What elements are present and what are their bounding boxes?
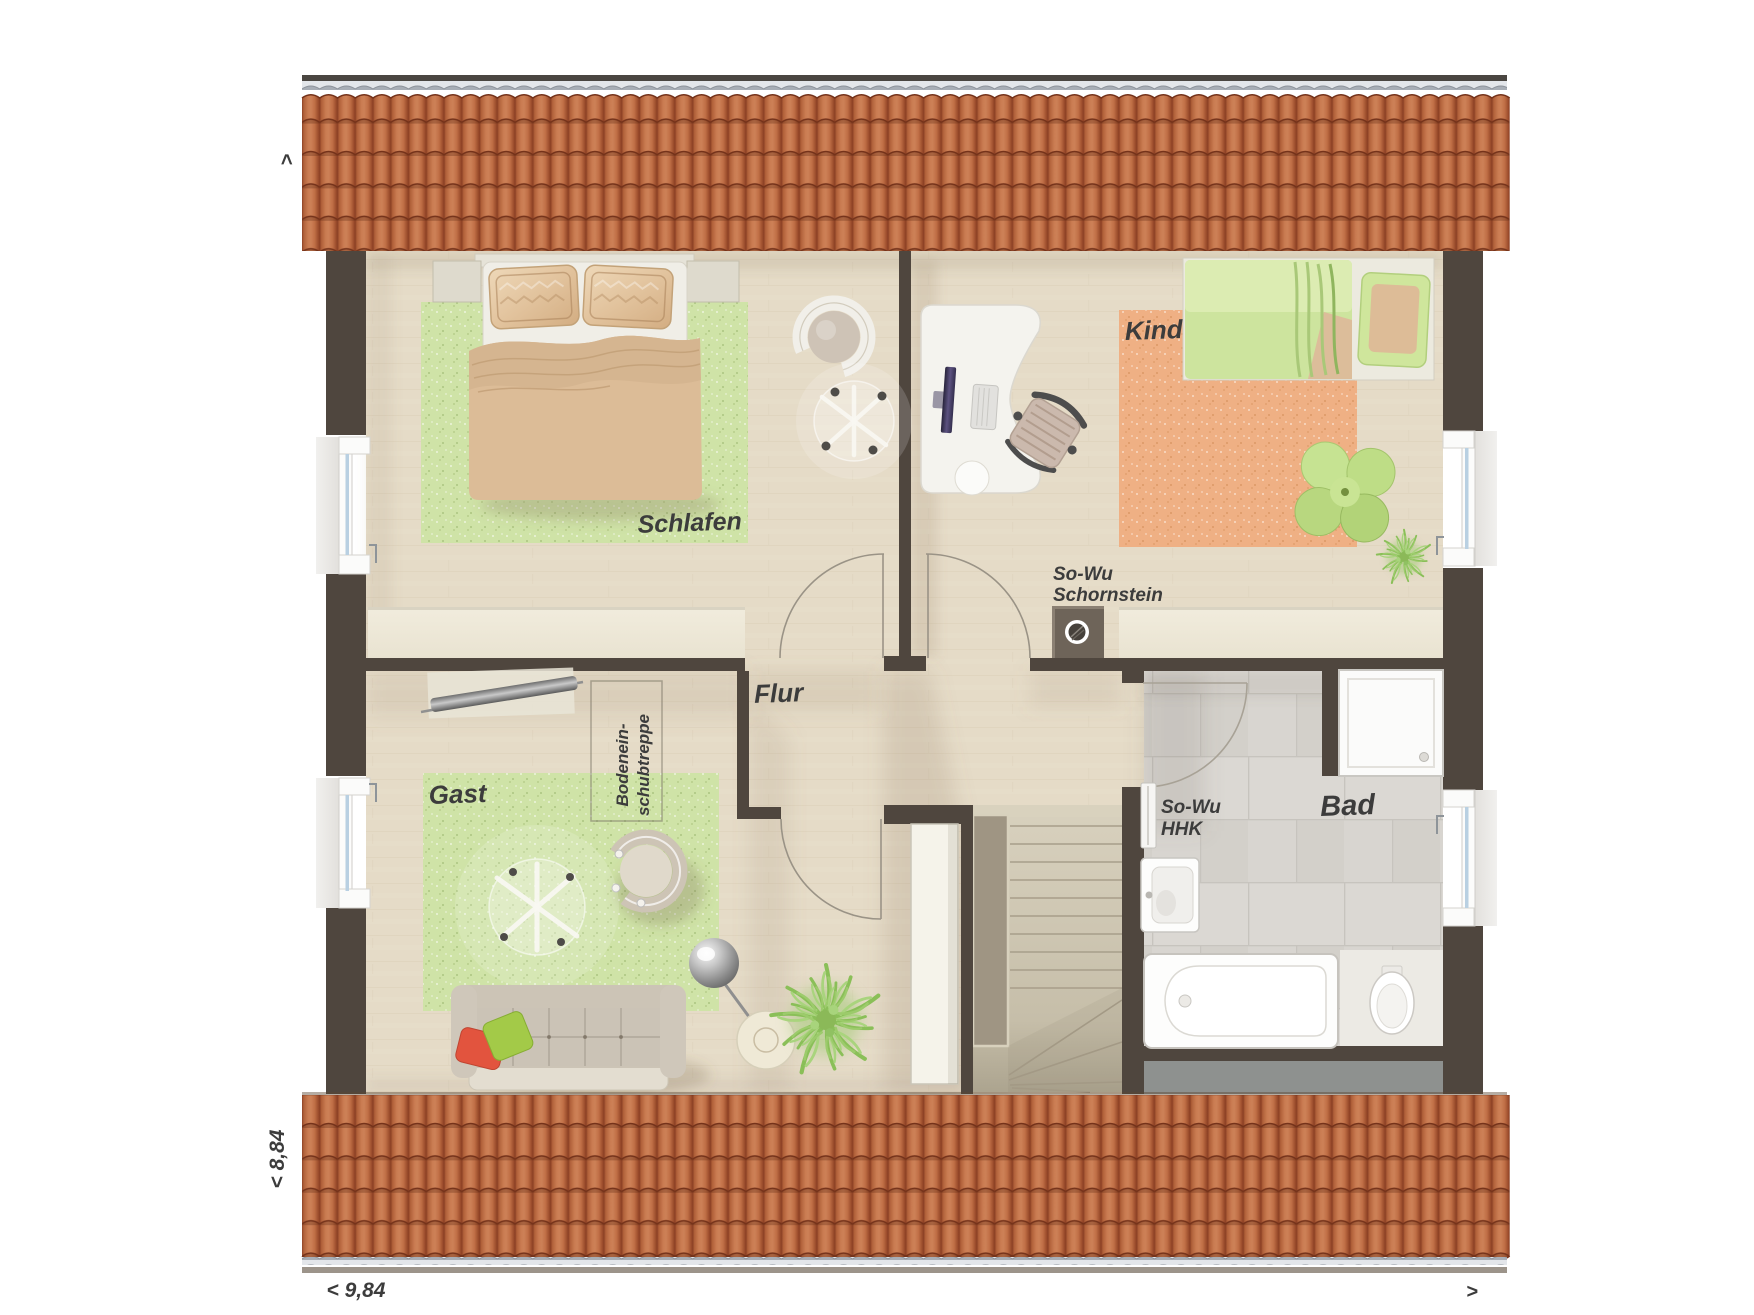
svg-text:Schlafen: Schlafen: [637, 507, 742, 539]
svg-text:< 9,84: < 9,84: [327, 1279, 386, 1302]
svg-text:Flur: Flur: [754, 677, 806, 709]
svg-text:So-Wu: So-Wu: [1053, 564, 1113, 585]
svg-text:Gast: Gast: [428, 778, 488, 810]
svg-text:Schornstein: Schornstein: [1053, 585, 1163, 606]
svg-text:<: <: [275, 153, 297, 165]
svg-text:So-Wu: So-Wu: [1161, 797, 1221, 818]
svg-text:HHK: HHK: [1161, 819, 1203, 840]
svg-text:>: >: [1466, 1281, 1478, 1303]
svg-text:< 8,84: < 8,84: [266, 1129, 289, 1188]
svg-text:Kind: Kind: [1124, 314, 1184, 346]
svg-text:schubtreppe: schubtreppe: [634, 714, 653, 816]
svg-text:Bodenein-: Bodenein-: [613, 723, 632, 806]
svg-text:Bad: Bad: [1320, 789, 1377, 823]
